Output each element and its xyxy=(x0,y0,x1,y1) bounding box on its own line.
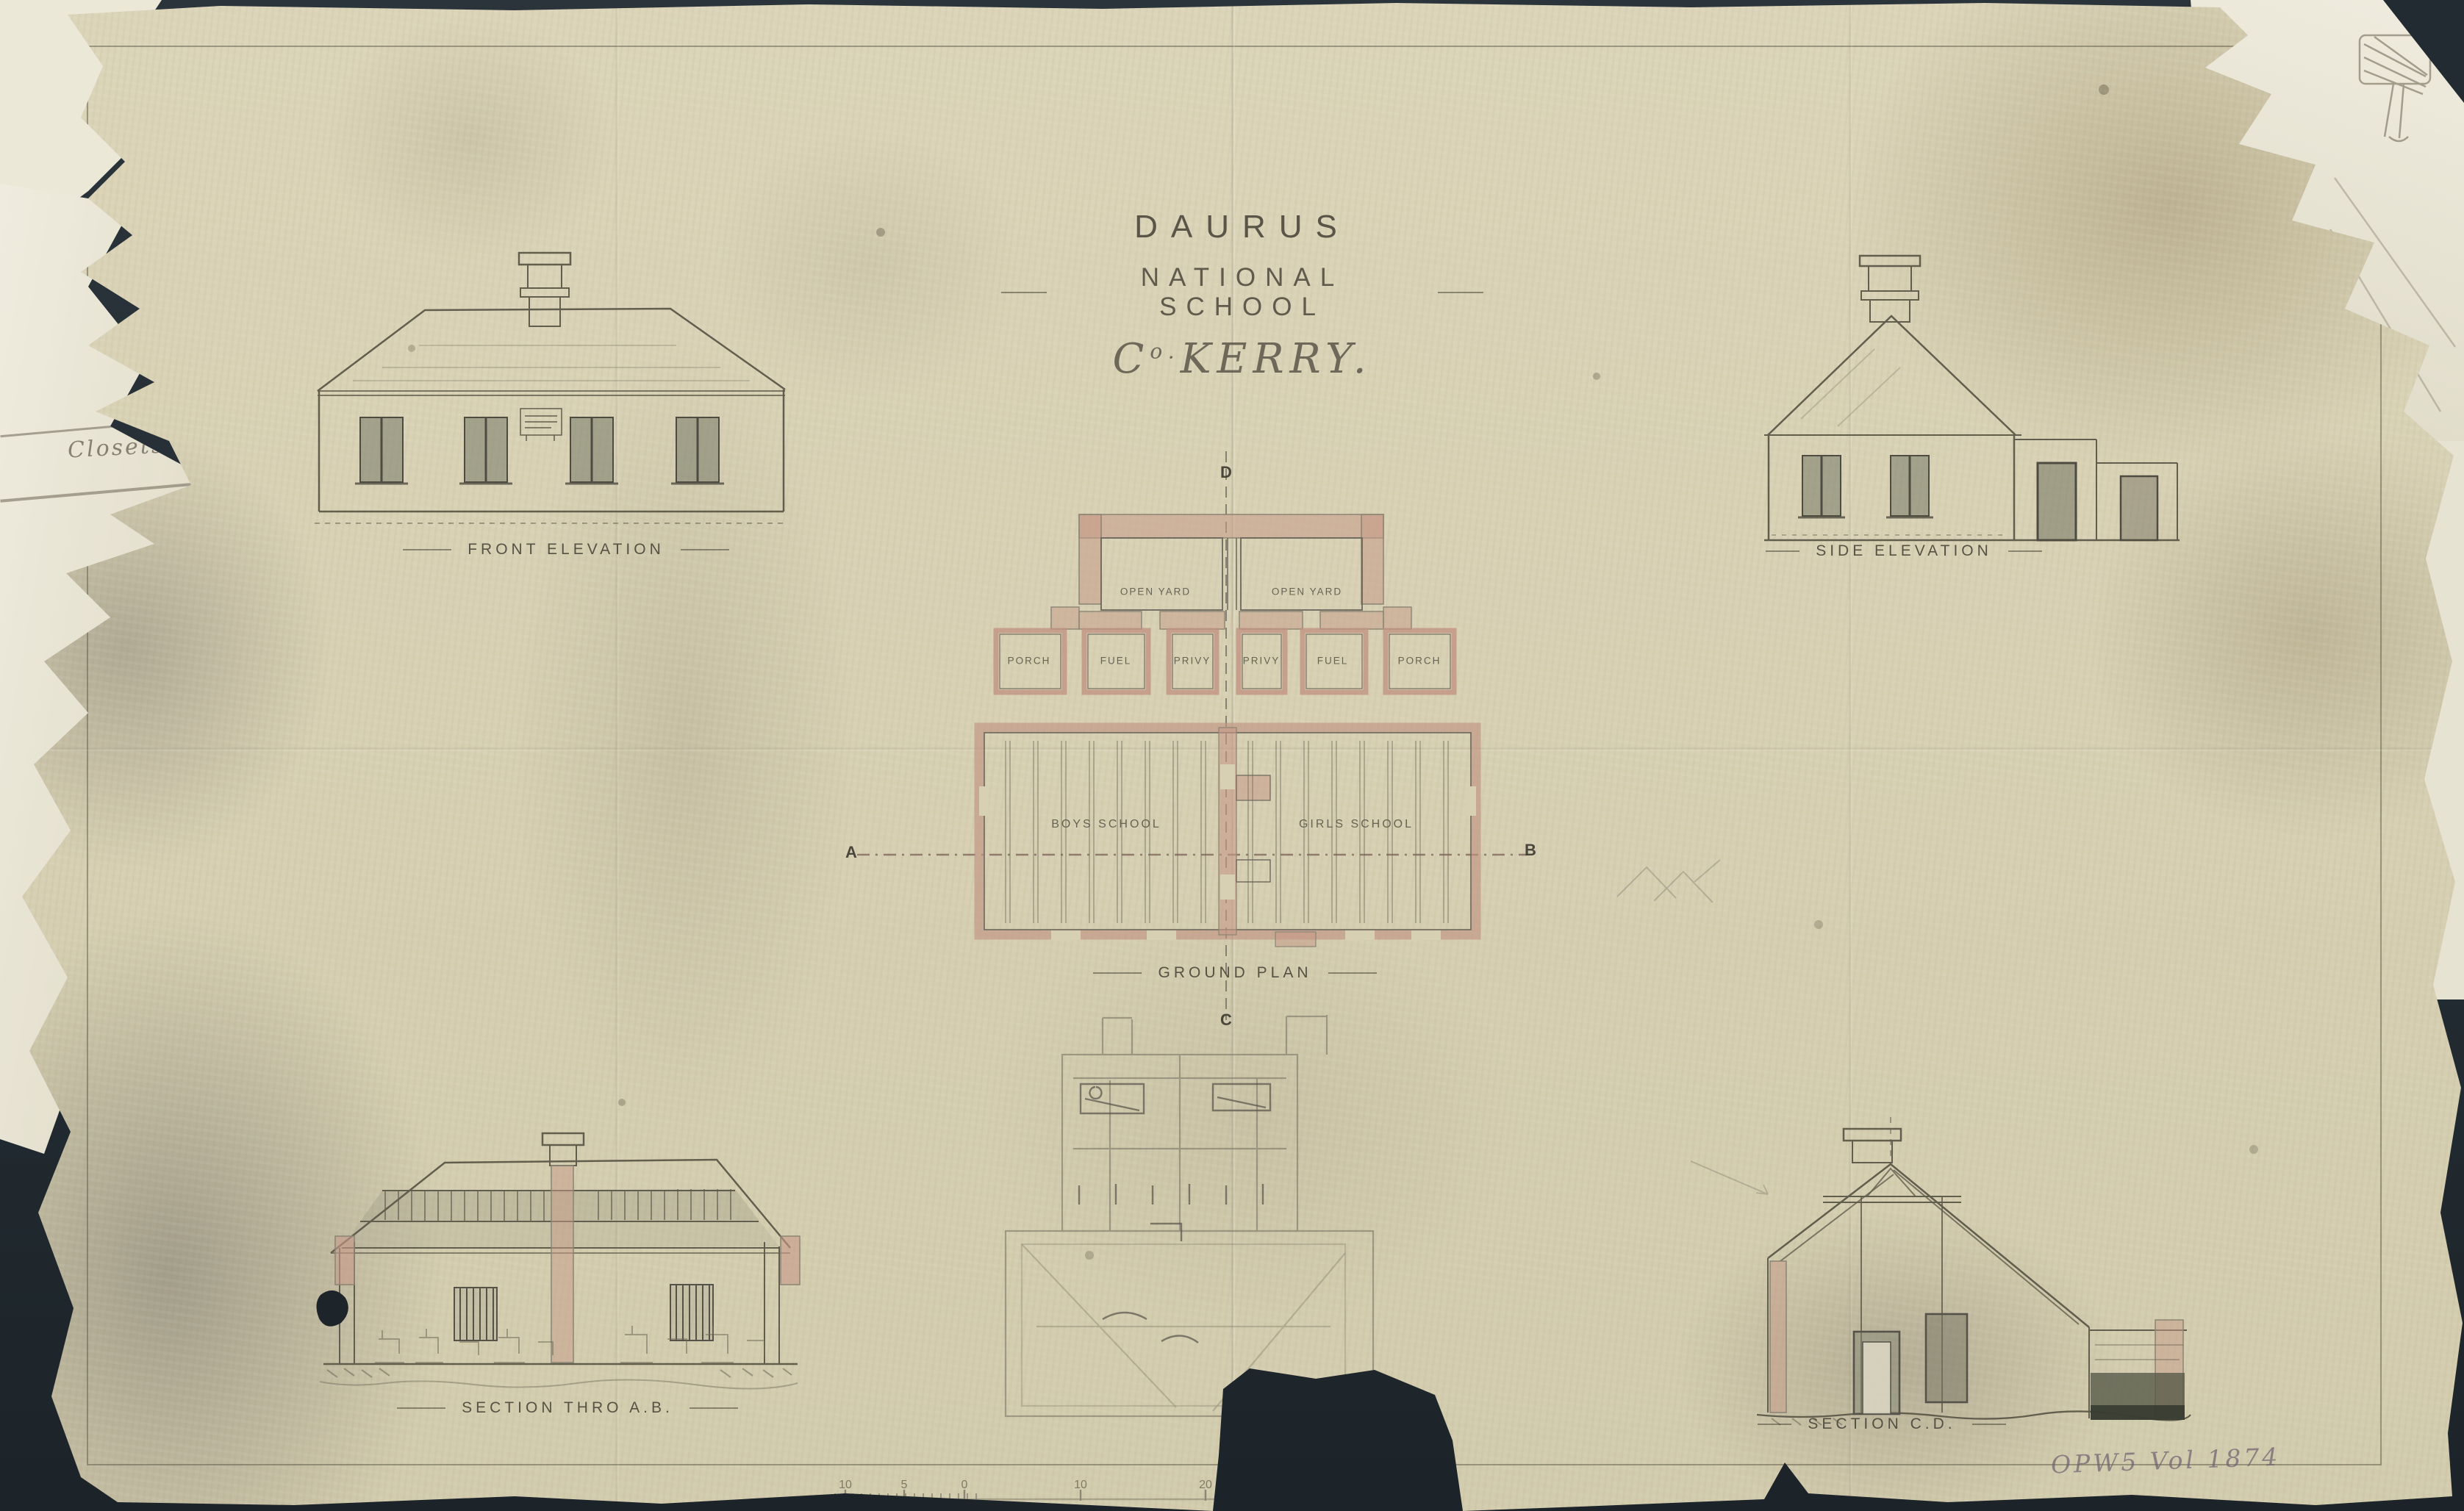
open-yard-left-label: OPEN YARD xyxy=(1120,586,1191,597)
title-rule-right xyxy=(1438,292,1483,293)
scale-number: 10 xyxy=(1074,1479,1087,1491)
room-label-fuel-right: FUEL xyxy=(1317,656,1349,667)
girls-school-label: GIRLS SCHOOL xyxy=(1299,818,1414,831)
caption-rule xyxy=(2008,550,2042,552)
front-elevation-caption-text: FRONT ELEVATION xyxy=(468,541,665,559)
scale-number: 5 xyxy=(901,1479,908,1491)
caption-rule xyxy=(1766,550,1799,552)
ground-plan-caption: GROUND PLAN xyxy=(1014,964,1455,982)
section-cd-caption-text: SECTION C.D. xyxy=(1808,1415,1955,1433)
room-label-porch-left: PORCH xyxy=(1008,656,1051,667)
scale-number: 0 xyxy=(961,1479,968,1491)
front-elevation-drawing xyxy=(309,243,794,551)
side-elevation-drawing xyxy=(1757,243,2198,551)
ground-plan-caption-text: GROUND PLAN xyxy=(1158,964,1311,982)
title-line-2: NATIONAL SCHOOL xyxy=(985,263,1500,322)
scanned-drawing-scene: Closets DAURUS NATIONAL SCHOOL xyxy=(0,0,2464,1511)
section-marker-d: D xyxy=(1220,463,1232,482)
front-elevation-caption: FRONT ELEVATION xyxy=(345,541,787,559)
caption-rule xyxy=(1758,1424,1791,1425)
section-marker-a: A xyxy=(845,843,857,862)
caption-rule xyxy=(403,549,451,550)
section-cd-caption: SECTION C.D. xyxy=(1661,1415,2102,1433)
faint-pencil-marks xyxy=(1602,838,1897,1249)
caption-rule xyxy=(397,1407,445,1409)
caption-rule xyxy=(681,549,729,550)
side-elevation-caption-text: SIDE ELEVATION xyxy=(1816,542,1992,560)
section-marker-b: B xyxy=(1525,841,1536,860)
title-rule-left xyxy=(1001,292,1047,293)
scale-bar: 10 5 0 10 20 xyxy=(809,1480,1397,1511)
illegible-handwriting-squiggle xyxy=(819,1496,913,1508)
room-label-privy-right: PRIVY xyxy=(1243,656,1281,667)
title-county: Co.KERRY. xyxy=(985,335,1500,383)
title-line-2-text: NATIONAL SCHOOL xyxy=(1063,263,1422,322)
scale-number: 20 xyxy=(1199,1479,1212,1491)
caption-rule xyxy=(1328,972,1377,974)
caption-rule xyxy=(690,1407,738,1409)
closets-handwritten-note: Closets xyxy=(67,433,165,464)
section-ab-caption-text: SECTION THRO A.B. xyxy=(462,1399,673,1417)
section-ab-caption: SECTION THRO A.B. xyxy=(347,1399,788,1417)
ground-plan-drawing: OPEN YARD OPEN YARD PORCH FUEL PRIVY PRI… xyxy=(831,441,1551,1029)
caption-rule xyxy=(1093,972,1142,974)
rough-pencil-sketch xyxy=(992,1011,1404,1422)
title-line-1: DAURUS xyxy=(985,209,1500,245)
section-ab-drawing xyxy=(309,1117,809,1411)
drawing-sheet: DAURUS NATIONAL SCHOOL Co.KERRY. xyxy=(0,0,2464,1511)
title-block: DAURUS NATIONAL SCHOOL Co.KERRY. xyxy=(985,209,1500,383)
room-label-privy-left: PRIVY xyxy=(1174,656,1211,667)
side-elevation-caption: SIDE ELEVATION xyxy=(1683,542,2124,560)
open-yard-right-label: OPEN YARD xyxy=(1272,586,1342,597)
caption-rule xyxy=(1972,1424,2006,1425)
room-label-fuel-left: FUEL xyxy=(1100,656,1132,667)
scale-number: 10 xyxy=(839,1479,852,1491)
room-label-porch-right: PORCH xyxy=(1398,656,1441,667)
boys-school-label: BOYS SCHOOL xyxy=(1051,818,1161,831)
